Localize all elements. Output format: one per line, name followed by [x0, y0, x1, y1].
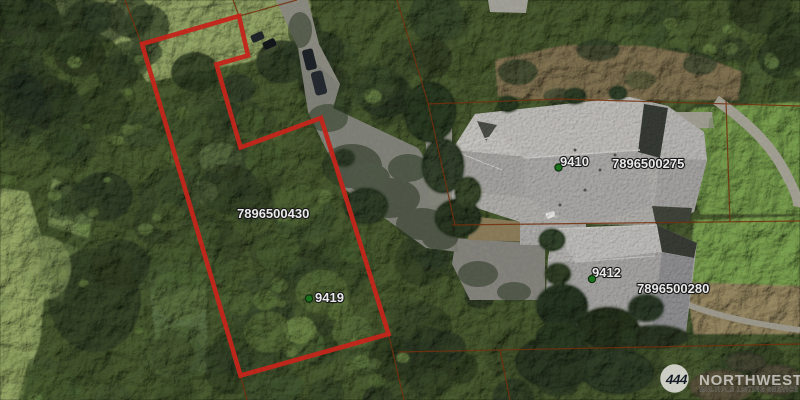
- svg-text:444: 444: [664, 372, 689, 387]
- svg-text:MULTIPLE LISTING SERVICE: MULTIPLE LISTING SERVICE: [700, 387, 799, 394]
